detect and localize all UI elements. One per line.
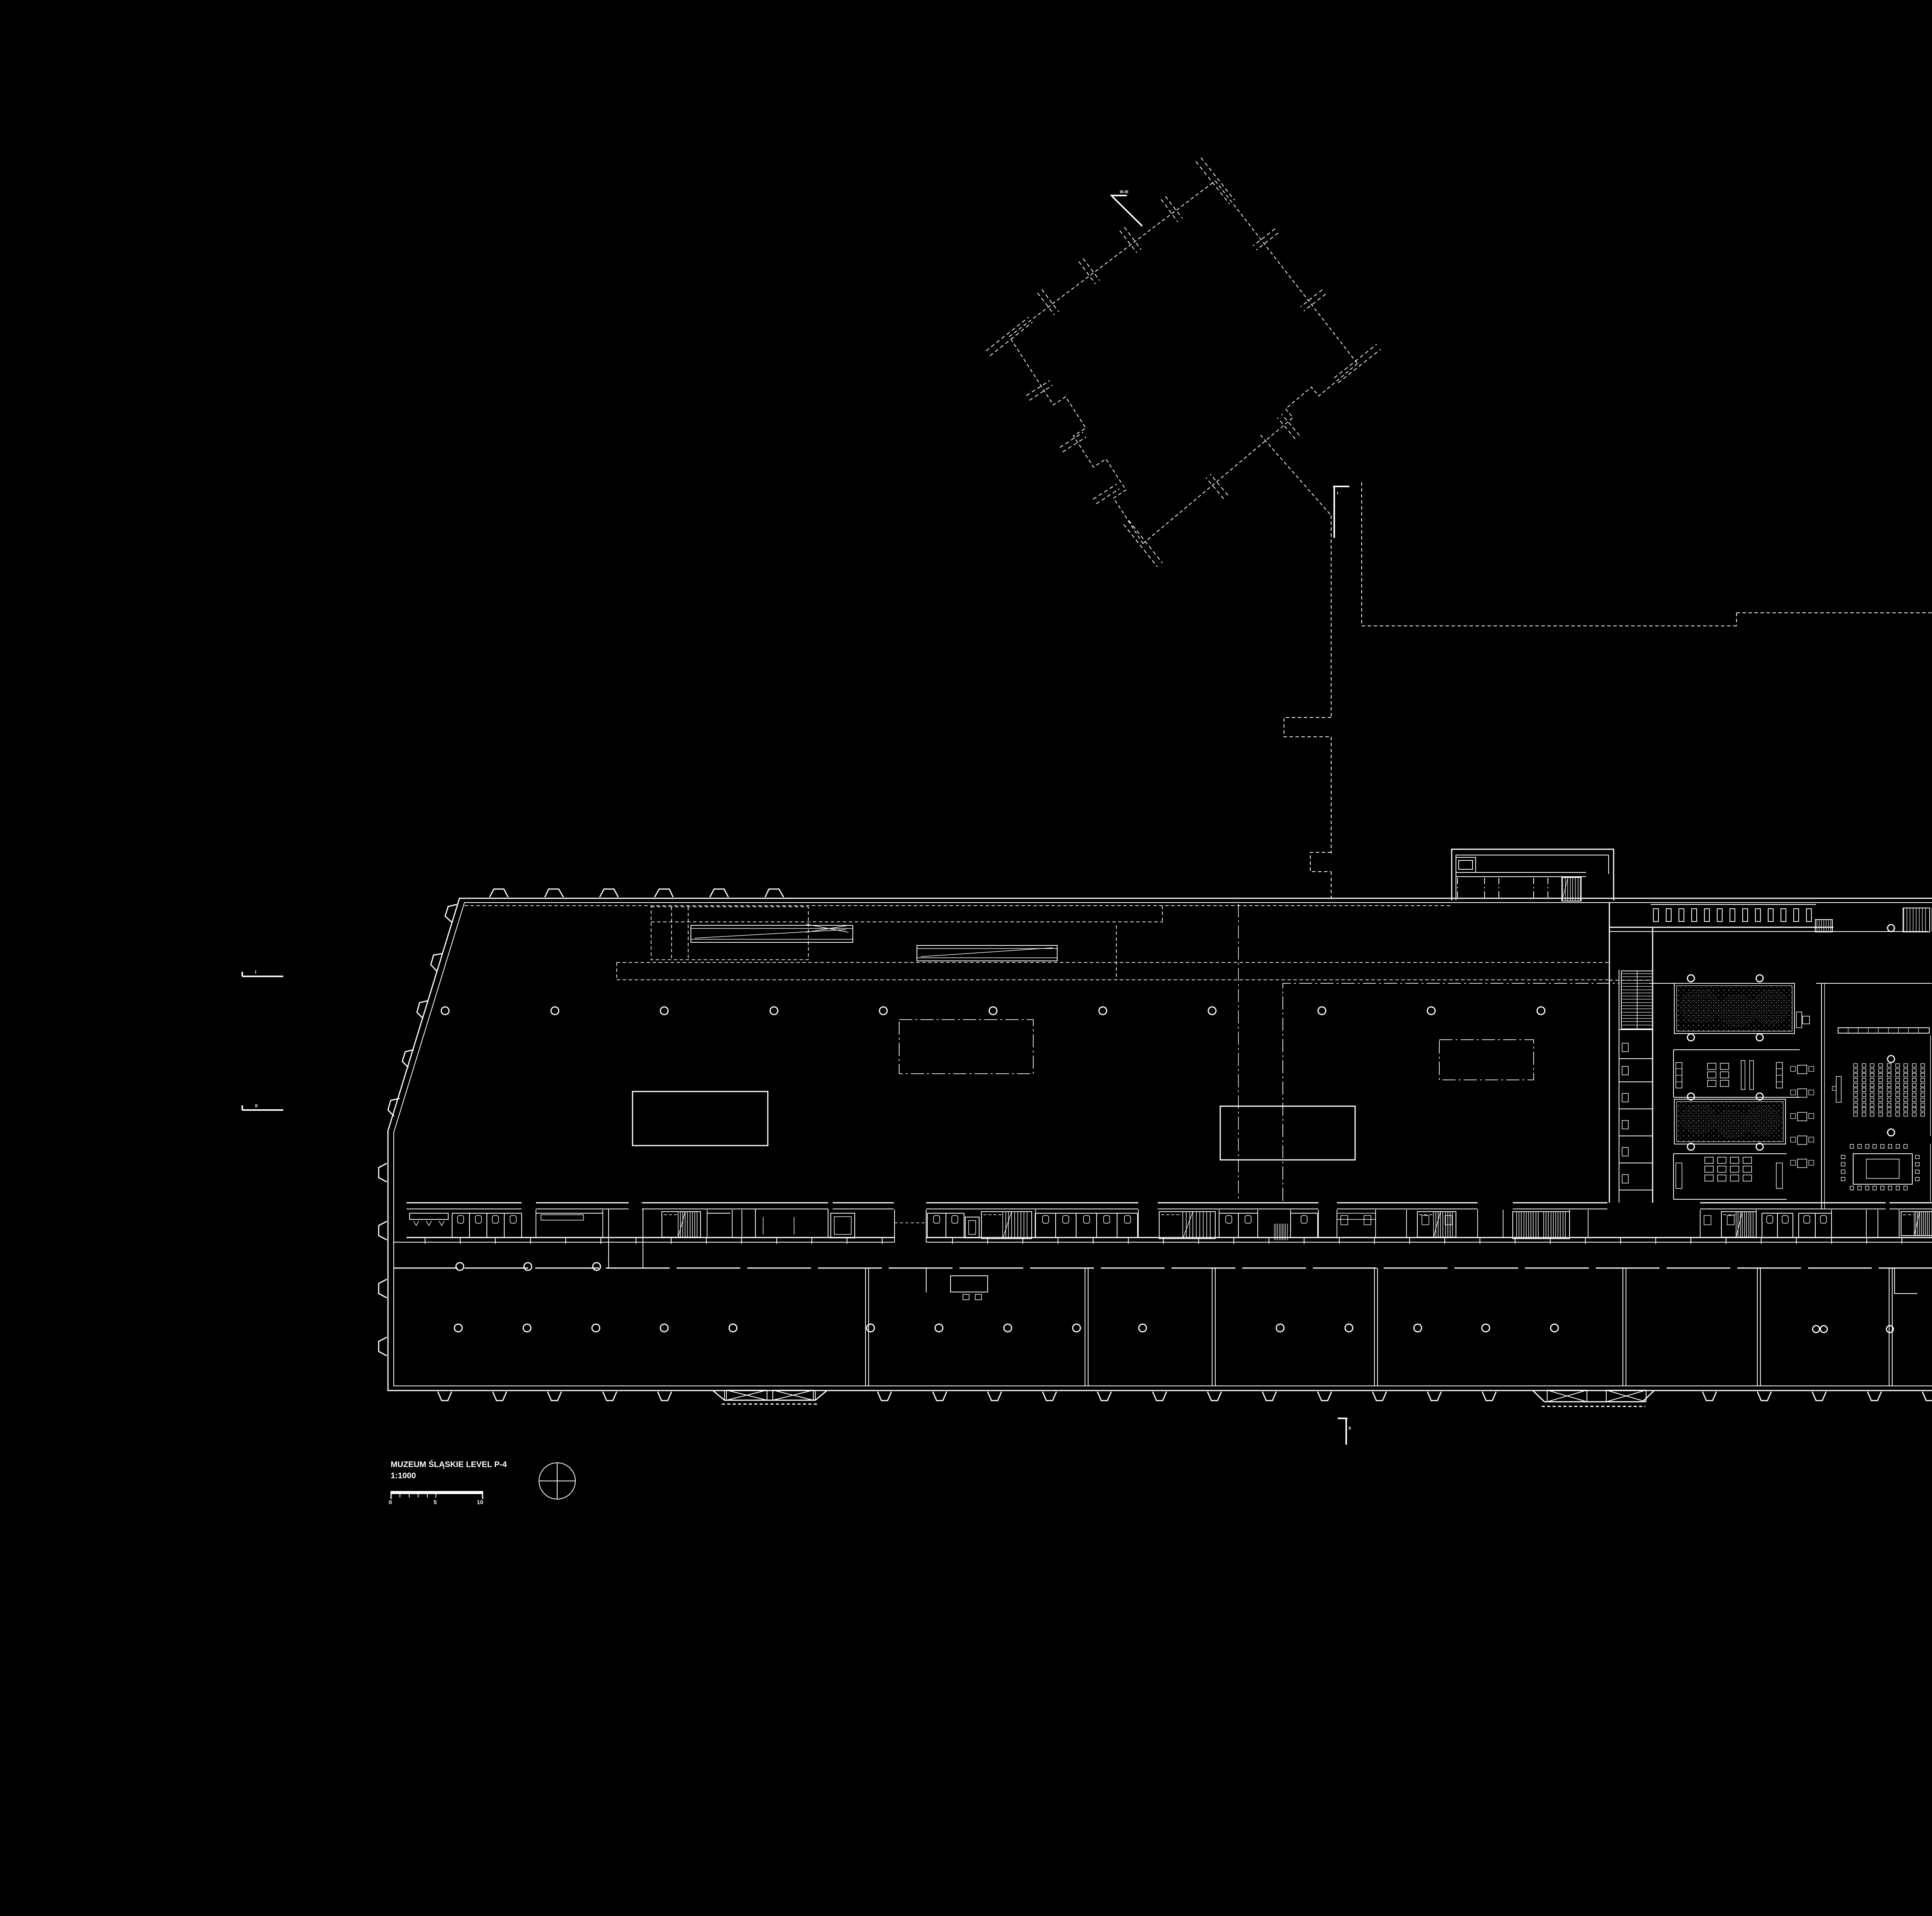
svg-text:MUZEUM ŚLĄSKIE LEVEL P-4: MUZEUM ŚLĄSKIE LEVEL P-4 (391, 1460, 507, 1469)
svg-text:10: 10 (477, 1499, 483, 1506)
svg-text:I: I (255, 969, 256, 975)
svg-text:1:1000: 1:1000 (391, 1471, 416, 1480)
svg-text:II: II (1349, 1426, 1351, 1431)
svg-text:5: 5 (434, 1499, 437, 1506)
svg-text:0: 0 (389, 1499, 392, 1506)
svg-text:III-III: III-III (1120, 190, 1128, 194)
svg-text:II: II (255, 1103, 258, 1108)
svg-text:I: I (1337, 491, 1338, 496)
